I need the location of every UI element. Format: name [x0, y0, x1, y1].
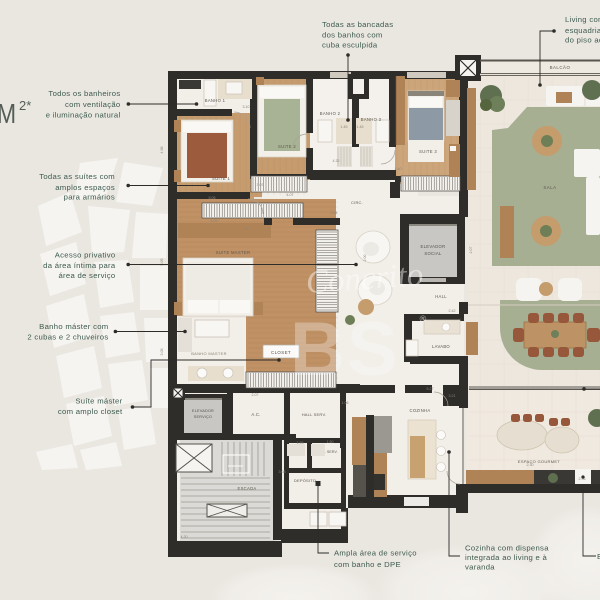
svg-text:BANHO 2: BANHO 2: [320, 111, 341, 116]
svg-text:1.06: 1.06: [342, 401, 349, 405]
svg-text:A.C.: A.C.: [251, 412, 260, 417]
svg-text:ELEVADOR: ELEVADOR: [192, 409, 214, 413]
svg-text:1.95: 1.95: [297, 441, 304, 445]
svg-text:CIRC.: CIRC.: [351, 200, 363, 205]
svg-text:DEPÓSITO: DEPÓSITO: [294, 478, 316, 483]
svg-text:Suíte máster: Suíte máster: [75, 396, 122, 405]
svg-text:esquadrias: esquadrias: [565, 26, 600, 35]
svg-text:BANHO MASTER: BANHO MASTER: [191, 351, 227, 356]
svg-text:CLOSET: CLOSET: [271, 350, 291, 355]
svg-text:2 cubas e 2 chuveiros: 2 cubas e 2 chuveiros: [27, 332, 108, 341]
svg-text:1.50: 1.50: [327, 440, 334, 444]
svg-text:2.42: 2.42: [449, 309, 456, 313]
svg-text:varanda: varanda: [465, 563, 495, 572]
svg-text:Todas as suítes com: Todas as suítes com: [39, 172, 115, 181]
svg-text:com amplo closet: com amplo closet: [58, 407, 123, 416]
svg-text:4.98: 4.98: [160, 147, 164, 154]
svg-text:SALA: SALA: [543, 185, 556, 190]
svg-text:1.45: 1.45: [357, 125, 364, 129]
svg-text:amplos espaços: amplos espaços: [55, 183, 115, 192]
svg-text:HALL: HALL: [435, 294, 447, 299]
svg-text:4.20: 4.20: [181, 535, 188, 539]
svg-text:2.07: 2.07: [252, 393, 259, 397]
svg-text:SOCIAL: SOCIAL: [424, 251, 442, 256]
svg-text:1.30: 1.30: [243, 227, 250, 231]
svg-text:Ampla área de serviço: Ampla área de serviço: [334, 549, 417, 558]
svg-text:para armários: para armários: [64, 193, 115, 202]
svg-text:HALL SERV.: HALL SERV.: [302, 412, 327, 417]
svg-text:BS: BS: [290, 307, 400, 392]
svg-text:e iluminação natural: e iluminação natural: [46, 111, 121, 120]
svg-text:2.30: 2.30: [527, 463, 534, 467]
svg-text:com banho e DPE: com banho e DPE: [334, 560, 401, 569]
svg-text:ELEVADOR: ELEVADOR: [421, 244, 446, 249]
svg-text:5.05: 5.05: [209, 196, 216, 200]
svg-text:área de serviço: área de serviço: [58, 271, 115, 280]
svg-text:4.32: 4.32: [333, 159, 340, 163]
svg-text:Todos os banheiros: Todos os banheiros: [48, 89, 120, 98]
svg-text:1.40: 1.40: [395, 167, 402, 171]
svg-text:BANHO 1: BANHO 1: [205, 98, 226, 103]
svg-text:ESPAÇO GOURMET: ESPAÇO GOURMET: [518, 459, 560, 464]
svg-text:4.07: 4.07: [287, 193, 294, 197]
svg-text:Todas as bancadas: Todas as bancadas: [322, 20, 393, 29]
svg-text:3.08: 3.08: [279, 470, 286, 474]
svg-text:da área íntima para: da área íntima para: [43, 261, 116, 270]
svg-text:com ventilação: com ventilação: [65, 100, 120, 109]
svg-text:5.27: 5.27: [427, 387, 434, 391]
svg-text:3.07: 3.07: [257, 183, 264, 187]
svg-text:Acesso privativo: Acesso privativo: [55, 251, 116, 260]
svg-text:do piso ao: do piso ao: [565, 36, 600, 45]
svg-text:3.10: 3.10: [243, 105, 250, 109]
svg-text:2.07: 2.07: [469, 247, 473, 254]
svg-text:M: M: [0, 99, 16, 130]
svg-text:COZINHA: COZINHA: [410, 408, 431, 413]
svg-text:®: ®: [420, 314, 427, 324]
svg-text:3.04: 3.04: [331, 211, 338, 215]
svg-text:integrada ao living e à: integrada ao living e à: [465, 553, 548, 562]
svg-text:dos banhos com: dos banhos com: [322, 30, 383, 39]
svg-text:SERVIÇO: SERVIÇO: [194, 415, 212, 419]
svg-text:SUITE 3: SUITE 3: [419, 149, 437, 154]
svg-text:3.08: 3.08: [160, 349, 164, 356]
svg-text:SUITE MASTER: SUITE MASTER: [216, 250, 251, 255]
svg-text:LAVABO: LAVABO: [432, 344, 450, 349]
svg-text:cuba esculpida: cuba esculpida: [322, 40, 378, 49]
svg-text:1.45: 1.45: [341, 125, 348, 129]
svg-text:Cozinha com dispensa: Cozinha com dispensa: [465, 544, 549, 553]
svg-text:5.05: 5.05: [211, 219, 218, 223]
svg-text:ESCADA: ESCADA: [237, 486, 256, 491]
svg-text:BALCÃO: BALCÃO: [550, 65, 571, 70]
svg-text:Banho máster com: Banho máster com: [39, 322, 108, 331]
svg-text:SUITE 1: SUITE 1: [212, 176, 230, 181]
svg-text:BANHO 3: BANHO 3: [361, 117, 382, 122]
svg-text:Living com: Living com: [565, 15, 600, 24]
svg-text:3.21: 3.21: [449, 394, 456, 398]
svg-text:2*: 2*: [19, 98, 31, 113]
